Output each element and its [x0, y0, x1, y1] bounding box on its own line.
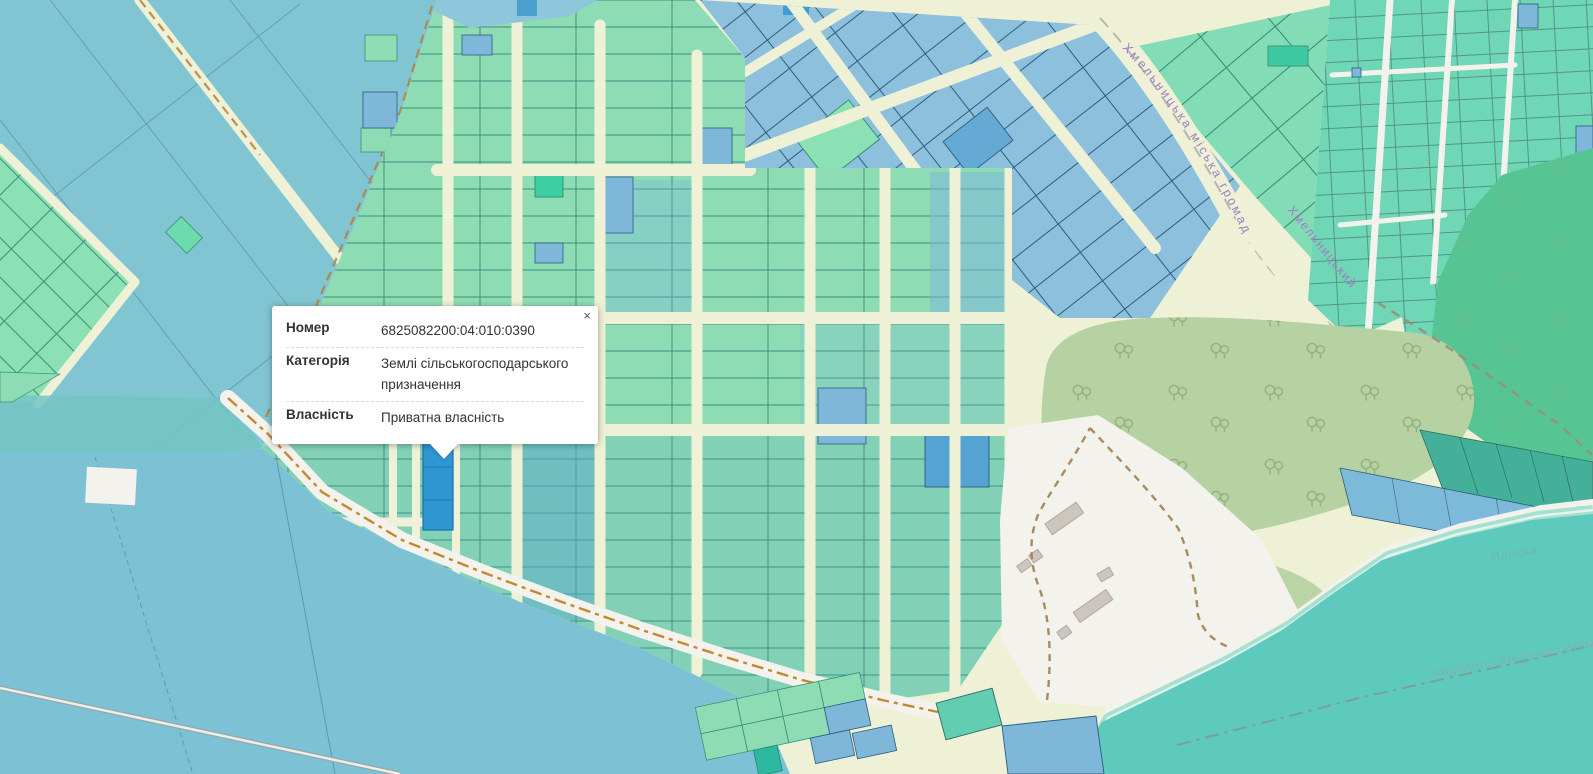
cadastral-number-value: 6825082200:04:010:0390	[381, 320, 584, 341]
ownership-label: Власність	[286, 407, 381, 428]
category-value: Землі сільськогосподарського призначення	[381, 353, 584, 395]
popup-row-ownership: Власність Приватна власність	[286, 401, 584, 434]
close-icon[interactable]: ×	[583, 309, 591, 322]
number-label: Номер	[286, 320, 381, 341]
ownership-value: Приватна власність	[381, 407, 584, 428]
popup-arrow	[430, 444, 458, 459]
popup-row-category: Категорія Землі сільськогосподарського п…	[286, 347, 584, 401]
map-canvas[interactable]: Хмельницька міська громада Хмельницький …	[0, 0, 1593, 774]
category-label: Категорія	[286, 353, 381, 395]
popup-row-number: Номер 6825082200:04:010:0390	[286, 315, 584, 347]
parcel-info-popup: × Номер 6825082200:04:010:0390 Категорія…	[272, 306, 598, 444]
cadastral-map-app: Хмельницька міська громада Хмельницький …	[0, 0, 1593, 774]
